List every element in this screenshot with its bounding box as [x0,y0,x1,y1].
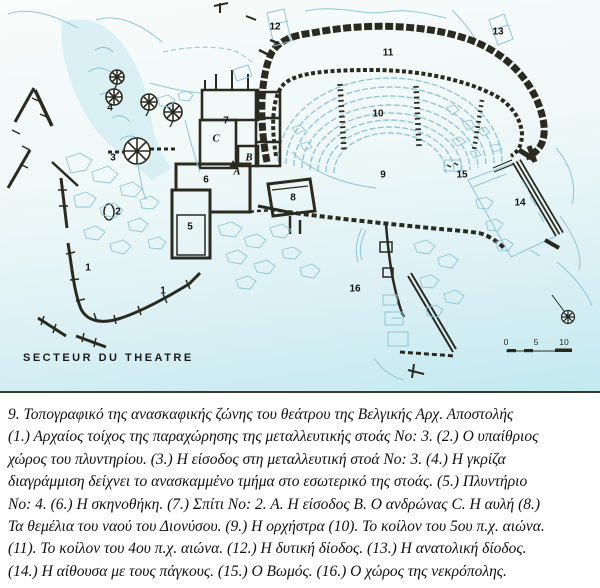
map-label-3: 3 [110,153,116,164]
map-label-11: 11 [383,48,394,59]
map-label-5: 5 [187,222,193,233]
south-wall [258,206,504,356]
north-label: N [566,314,571,321]
map-label-8: 8 [290,193,296,204]
map-label-C: C [212,134,219,145]
map-label-1: 1 [160,286,166,297]
map-label-9: 9 [380,170,386,181]
map-label-7: 7 [223,116,229,127]
map-label-2: 2 [115,207,121,218]
caption-line-7: (11). Το κοίλον του 4ου π.χ. αιώνα. (12.… [8,538,596,560]
map-label-B: B [245,153,252,164]
map-label-12: 12 [269,22,280,33]
plan-drawing [0,0,600,389]
caption-line-5: No: 4. (6.) Η σκηνοθήκη. (7.) Σπίτι No: … [8,494,596,516]
map-label-15: 15 [456,170,467,181]
scale-tick-0: 0 [504,337,509,347]
theatre-outer-wall [262,26,544,162]
caption-line-4: διαγράμμιση δείχνει το ανασκαμμένο τμήμα… [8,471,596,493]
map-label-16: 16 [349,284,360,295]
north-arrow-icon [552,295,575,324]
seat-rows [278,78,502,188]
caption-line-1: 9. Τοπογραφικό της ανασκαφικής ζώνης του… [8,404,596,426]
necropolis-structures [356,228,424,380]
figure-caption: 9. Τοπογραφικό της ανασκαφικής ζώνης του… [0,393,600,588]
caption-line-2: (1.) Αρχαίος τοίχος της παραχώρησης της … [8,426,596,448]
caption-line-3: χώρος του πλυντηρίου. (3.) Η είσοδος στη… [8,449,596,471]
map-label-A: A [233,167,240,178]
caption-line-6: Τα θεμέλια του ναού του Διονύσου. (9.) Η… [8,516,596,538]
page-root: 112345678910111213141516ABC SECTEUR DU T… [0,0,600,588]
scale-tick-10: 10 [559,337,568,347]
map-label-10: 10 [372,109,383,120]
site-plan: 112345678910111213141516ABC SECTEUR DU T… [0,0,600,393]
map-label-14: 14 [514,198,525,209]
scale-bar [506,349,572,353]
map-label-6: 6 [203,175,209,186]
map-label-13: 13 [492,27,503,38]
map-label-4: 4 [107,103,113,114]
caption-line-8: (14.) Η αίθουσα με τους πάγκους. (15.) Ο… [8,561,596,583]
scale-tick-5: 5 [534,337,539,347]
map-label-1: 1 [85,263,91,274]
secteur-label: SECTEUR DU THEATRE [23,352,194,364]
